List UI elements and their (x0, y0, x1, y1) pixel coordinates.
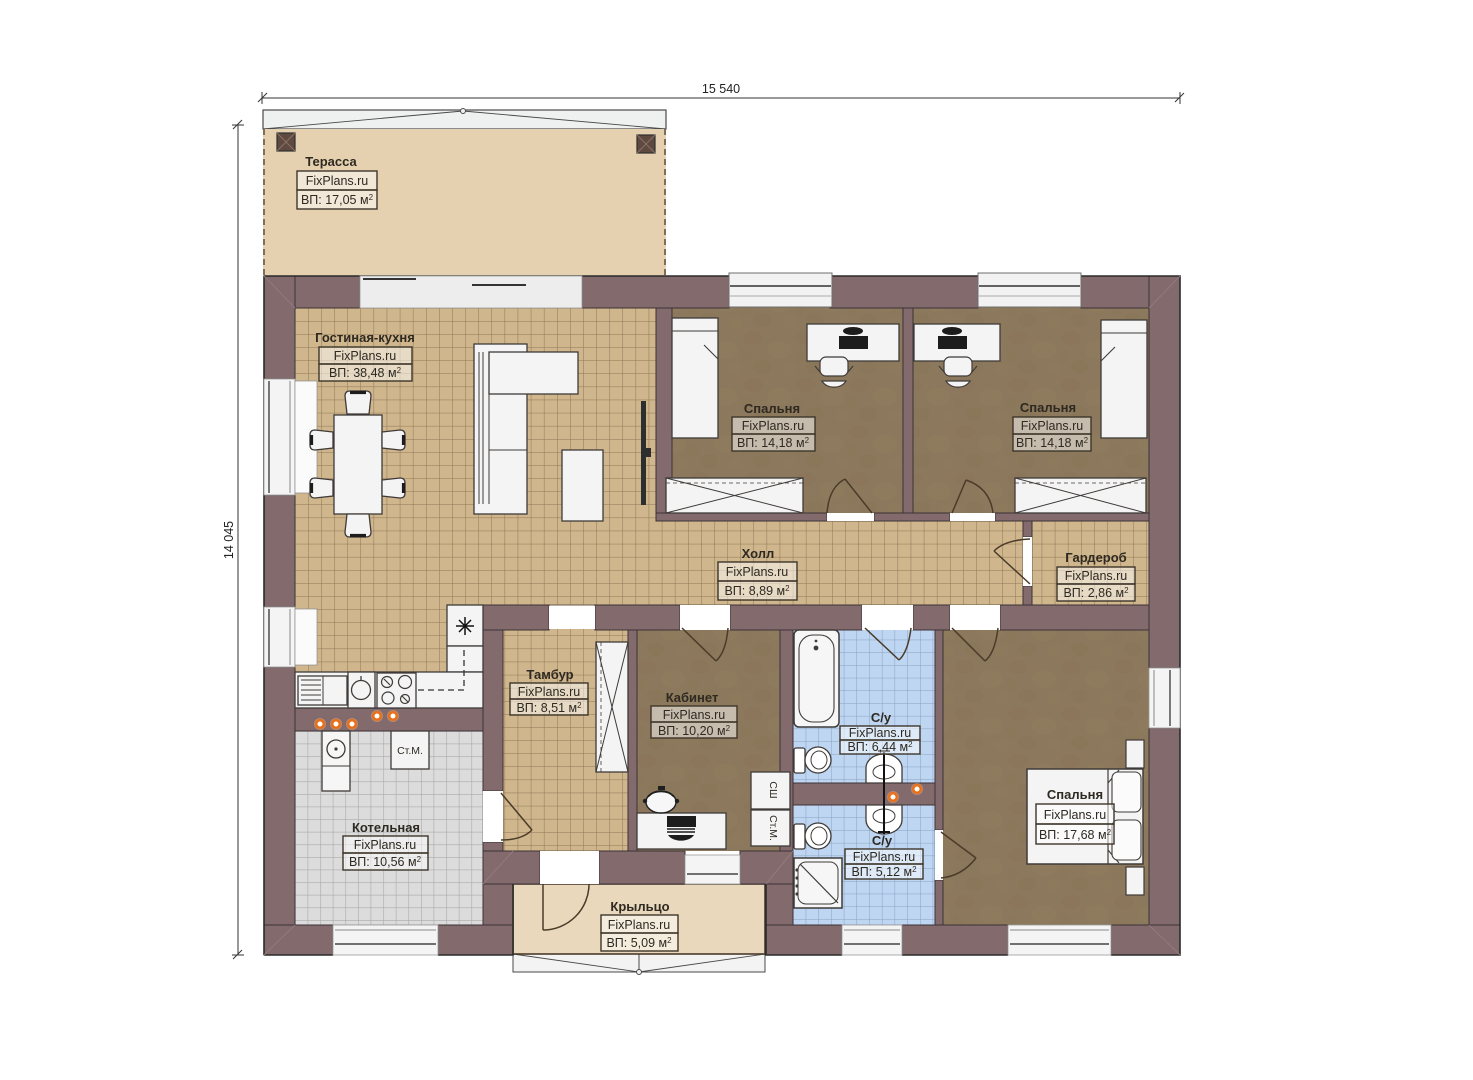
svg-text:Крыльцо: Крыльцо (610, 899, 669, 914)
svg-text:Тамбур: Тамбур (526, 667, 573, 682)
svg-text:ВП: 17,68 м2: ВП: 17,68 м2 (1039, 828, 1112, 843)
svg-text:С/у: С/у (872, 833, 893, 848)
svg-text:FixPlans.ru: FixPlans.ru (306, 174, 369, 188)
svg-text:Ст.М.: Ст.М. (767, 815, 779, 841)
svg-text:FixPlans.ru: FixPlans.ru (1065, 569, 1128, 583)
svg-text:15 540: 15 540 (702, 82, 740, 96)
svg-text:Спальня: Спальня (744, 401, 800, 416)
svg-text:FixPlans.ru: FixPlans.ru (354, 838, 417, 852)
svg-text:ВП: 10,20 м2: ВП: 10,20 м2 (658, 724, 731, 739)
svg-text:ВП: 5,09 м2: ВП: 5,09 м2 (606, 936, 672, 951)
svg-text:FixPlans.ru: FixPlans.ru (1021, 419, 1084, 433)
svg-text:Кабинет: Кабинет (666, 690, 719, 705)
svg-text:FixPlans.ru: FixPlans.ru (518, 685, 581, 699)
svg-text:ВП: 6,44 м2: ВП: 6,44 м2 (847, 740, 913, 755)
svg-text:Гостиная-кухня: Гостиная-кухня (315, 330, 415, 345)
svg-text:ВП: 14,18 м2: ВП: 14,18 м2 (1016, 436, 1089, 451)
svg-text:ВП: 8,51 м2: ВП: 8,51 м2 (516, 701, 582, 716)
svg-text:FixPlans.ru: FixPlans.ru (849, 726, 912, 740)
svg-text:FixPlans.ru: FixPlans.ru (853, 850, 916, 864)
svg-text:FixPlans.ru: FixPlans.ru (663, 708, 726, 722)
svg-text:ВП: 17,05 м2: ВП: 17,05 м2 (301, 193, 374, 208)
svg-text:С/у: С/у (871, 710, 892, 725)
svg-text:FixPlans.ru: FixPlans.ru (726, 565, 789, 579)
svg-text:ВП: 14,18 м2: ВП: 14,18 м2 (737, 436, 810, 451)
svg-text:СШ: СШ (767, 781, 779, 798)
svg-text:Ст.М.: Ст.М. (397, 745, 423, 757)
svg-text:14 045: 14 045 (222, 521, 236, 559)
svg-text:ВП: 10,56 м2: ВП: 10,56 м2 (349, 855, 422, 870)
svg-text:Спальня: Спальня (1047, 787, 1103, 802)
svg-text:Гардероб: Гардероб (1065, 550, 1126, 565)
svg-text:Котельная: Котельная (352, 820, 420, 835)
svg-text:FixPlans.ru: FixPlans.ru (742, 419, 805, 433)
svg-text:Холл: Холл (742, 546, 775, 561)
svg-text:ВП: 38,48 м2: ВП: 38,48 м2 (329, 366, 402, 381)
svg-text:FixPlans.ru: FixPlans.ru (608, 918, 671, 932)
svg-text:ВП: 8,89 м2: ВП: 8,89 м2 (724, 584, 790, 599)
svg-text:Спальня: Спальня (1020, 400, 1076, 415)
svg-text:ВП: 5,12 м2: ВП: 5,12 м2 (851, 865, 917, 880)
svg-text:FixPlans.ru: FixPlans.ru (1044, 808, 1107, 822)
svg-text:FixPlans.ru: FixPlans.ru (334, 349, 397, 363)
svg-text:Терасса: Терасса (305, 154, 357, 169)
svg-text:ВП: 2,86 м2: ВП: 2,86 м2 (1063, 586, 1129, 601)
